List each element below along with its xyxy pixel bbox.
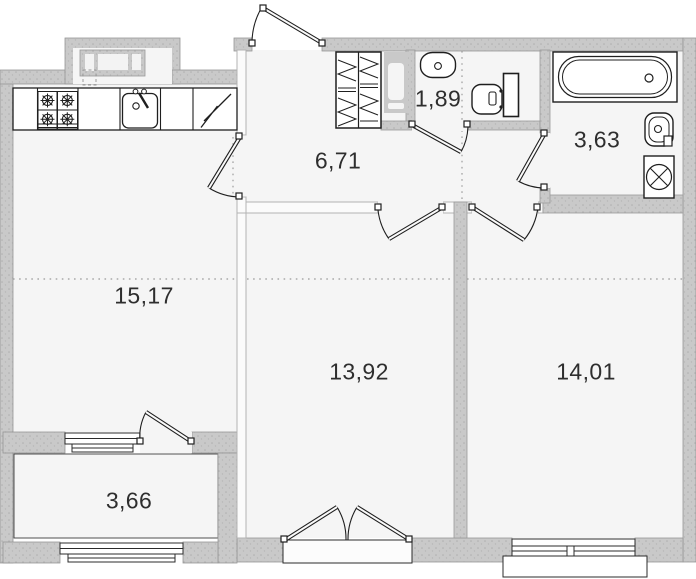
kitchen-sink xyxy=(123,89,158,128)
area-label-room-middle: 13,92 xyxy=(329,359,389,386)
wall-room-divider xyxy=(454,202,467,538)
wall-top-main xyxy=(322,38,683,51)
bathroom-sink xyxy=(645,113,673,146)
area-label-room-right: 14,01 xyxy=(556,359,616,386)
floor-plan: 15,17 6,71 1,89 3,63 13,92 14,01 3,66 xyxy=(0,0,696,579)
area-label-wc: 1,89 xyxy=(415,86,461,113)
floor-plan-drawing xyxy=(0,0,696,579)
area-label-bathroom: 3,63 xyxy=(574,127,620,154)
balcony-window-bottom xyxy=(60,543,183,562)
wardrobe xyxy=(336,52,381,128)
wall-balcony-top-a xyxy=(3,432,65,453)
niche xyxy=(73,48,172,85)
double-door-threshold xyxy=(283,540,412,563)
area-label-balcony: 3,66 xyxy=(106,488,152,515)
bathtub xyxy=(553,52,677,102)
room-right-window xyxy=(503,539,647,577)
wall-bottom-a xyxy=(237,538,283,562)
wall-top-kitchen-left xyxy=(0,70,73,84)
wall-balcony-top-b xyxy=(192,432,237,453)
entrance-door-arc xyxy=(252,7,262,43)
wall-balcony-bottom-a xyxy=(3,542,60,563)
wall-right xyxy=(683,38,696,562)
area-label-kitchen-living: 15,17 xyxy=(114,283,174,310)
wall-balcony-right xyxy=(218,453,237,563)
wc-sink xyxy=(421,53,456,78)
area-label-hallway: 6,71 xyxy=(315,148,361,175)
wall-bottom-b xyxy=(412,538,512,562)
wall-left xyxy=(0,77,13,563)
wall-top-kitchen-right xyxy=(172,70,237,84)
wall-balcony-bottom-b xyxy=(183,542,218,563)
hall-cabinet xyxy=(384,52,408,113)
balcony-window-top xyxy=(65,433,140,452)
washing-machine xyxy=(644,156,674,198)
stove xyxy=(38,92,78,130)
